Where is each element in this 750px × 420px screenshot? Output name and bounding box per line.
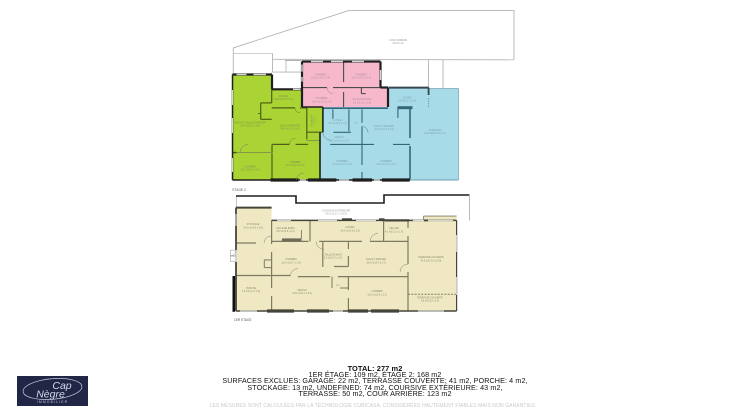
- svg-text:CHAMBRE: CHAMBRE: [336, 160, 348, 163]
- svg-text:CHAMBRE: CHAMBRE: [380, 160, 392, 163]
- svg-text:WC: WC: [336, 285, 340, 287]
- svg-text:13.5 m2 (3.9 x 3.5): 13.5 m2 (3.9 x 3.5): [376, 164, 396, 166]
- svg-text:COUVERTE 24.6 m2: COUVERTE 24.6 m2: [424, 133, 446, 135]
- svg-text:CUISINE: CUISINE: [402, 98, 412, 100]
- svg-text:43.0 m2 (2.1 x 19.5): 43.0 m2 (2.1 x 19.5): [325, 213, 347, 216]
- svg-text:SÉJOUR / SALLE À MANGER: SÉJOUR / SALLE À MANGER: [234, 122, 266, 125]
- svg-text:13.4 m2 (3.8 x 3.5): 13.4 m2 (3.8 x 3.5): [285, 165, 305, 167]
- svg-text:TERRASSE COUVERTE: TERRASSE COUVERTE: [417, 296, 443, 299]
- svg-text:10.9 m2 (3.3 x 3.3): 10.9 m2 (3.3 x 3.3): [312, 101, 332, 103]
- svg-text:11.8 m2 (3.4 x 3.4): 11.8 m2 (3.4 x 3.4): [311, 78, 330, 80]
- svg-text:13.0 m2 (3.4 x 3.8): 13.0 m2 (3.4 x 3.8): [243, 227, 263, 229]
- svg-text:ESCALIER: ESCALIER: [311, 115, 314, 126]
- svg-text:9.6 m2 (3.2 x 3.0): 9.6 m2 (3.2 x 3.0): [421, 301, 439, 303]
- svg-text:18.4 m2 (4.2 x 4.3): 18.4 m2 (4.2 x 4.3): [280, 129, 300, 131]
- svg-text:3.2 m2: 3.2 m2: [315, 117, 317, 124]
- svg-text:SÉJOUR: SÉJOUR: [334, 136, 344, 139]
- svg-text:CHAMBRE: CHAMBRE: [244, 166, 256, 169]
- svg-text:15.6 m2 (4.2 x 3.7): 15.6 m2 (4.2 x 3.7): [366, 262, 386, 264]
- svg-text:11.2 m2 (3.4 x 3.3): 11.2 m2 (3.4 x 3.3): [329, 140, 348, 142]
- svg-text:12.9 m2 (3.7 x 3.5): 12.9 m2 (3.7 x 3.5): [281, 262, 301, 264]
- svg-text:1ER ETAGE: 1ER ETAGE: [234, 318, 252, 322]
- svg-text:TERRASSE COUVERTE: TERRASSE COUVERTE: [418, 256, 444, 259]
- svg-text:CELLIER: CELLIER: [389, 228, 399, 230]
- svg-text:3.9 m2 (2.0 x 1.9): 3.9 m2 (2.0 x 1.9): [328, 123, 346, 125]
- svg-text:ETAGE 2: ETAGE 2: [233, 188, 246, 192]
- svg-text:7.92 m2 (3.2 x 2.4): 7.92 m2 (3.2 x 2.4): [273, 99, 293, 101]
- svg-text:4.1 m2 (2.1 x 1.9): 4.1 m2 (2.1 x 1.9): [385, 231, 403, 233]
- svg-text:4.0 m2 (2.1 x 1.9): 4.0 m2 (2.1 x 1.9): [242, 291, 260, 293]
- svg-text:12.8 m2 (3.7 x 3.5): 12.8 m2 (3.7 x 3.5): [332, 164, 352, 166]
- svg-text:CHAMBRE: CHAMBRE: [315, 74, 327, 77]
- svg-text:SALLE DE BAINS: SALLE DE BAINS: [276, 227, 295, 230]
- svg-text:PORCHE: PORCHE: [246, 288, 256, 290]
- svg-text:6.2 m2 (2.6 x 2.4): 6.2 m2 (2.6 x 2.4): [324, 258, 342, 260]
- svg-text:CHAMBRE: CHAMBRE: [355, 74, 367, 77]
- svg-text:12.2 m2 (3.6 x 3.4): 12.2 m2 (3.6 x 3.4): [240, 170, 260, 172]
- svg-text:5.8 m2 (2.6 x 2.2): 5.8 m2 (2.6 x 2.2): [276, 231, 294, 233]
- svg-text:CUISINE: CUISINE: [345, 227, 355, 229]
- svg-text:8.2 m2 (3.1 x 2.6): 8.2 m2 (3.1 x 2.6): [353, 102, 371, 104]
- svg-text:123.45 m2: 123.45 m2: [392, 42, 404, 45]
- svg-text:S. D'EAU: S. D'EAU: [333, 119, 343, 122]
- svg-text:IMMOBILIER: IMMOBILIER: [36, 400, 67, 404]
- svg-text:8.9 m2 (3.1 x 2.9): 8.9 m2 (3.1 x 2.9): [398, 101, 416, 103]
- svg-text:CUISINE: CUISINE: [278, 96, 288, 98]
- svg-text:CHAMBRE: CHAMBRE: [316, 97, 328, 100]
- svg-text:SALLE À MANGER: SALLE À MANGER: [374, 125, 394, 128]
- svg-text:CHAMBRE: CHAMBRE: [371, 290, 383, 293]
- svg-text:12.4 m2 (3.6 x 3.4): 12.4 m2 (3.6 x 3.4): [351, 78, 371, 80]
- svg-text:STOCKAGE: STOCKAGE: [247, 223, 260, 226]
- svg-text:10.4 m2 (3.6 x 2.9): 10.4 m2 (3.6 x 2.9): [340, 230, 360, 232]
- svg-text:SALLE À MANGER: SALLE À MANGER: [280, 125, 300, 128]
- svg-text:SALLE DE BAIN: SALLE DE BAIN: [325, 253, 342, 256]
- svg-text:41.0 m2 (3.2 x 12.8): 41.0 m2 (3.2 x 12.8): [421, 260, 442, 262]
- svg-text:13.2 m2 (3.8 x 3.5): 13.2 m2 (3.8 x 3.5): [367, 294, 387, 296]
- svg-text:24.6 m2 (5.1 x 4.8): 24.6 m2 (5.1 x 4.8): [240, 126, 260, 128]
- svg-text:SALLE À MANGER: SALLE À MANGER: [366, 258, 386, 261]
- svg-text:Nègre: Nègre: [36, 388, 65, 400]
- svg-text:TERRASSE: TERRASSE: [429, 129, 442, 132]
- svg-text:CHAMBRE: CHAMBRE: [285, 258, 297, 261]
- svg-text:SALLE DE BAINS: SALLE DE BAINS: [353, 98, 372, 101]
- svg-text:WC: WC: [354, 123, 358, 125]
- svg-text:16.8 m2 (4.3 x 3.9): 16.8 m2 (4.3 x 3.9): [374, 129, 394, 131]
- svg-text:SÉJOUR: SÉJOUR: [297, 289, 307, 292]
- svg-text:CHAMBRE: CHAMBRE: [289, 161, 301, 164]
- svg-text:14.8 m2 (4.1 x 3.6): 14.8 m2 (4.1 x 3.6): [292, 293, 312, 295]
